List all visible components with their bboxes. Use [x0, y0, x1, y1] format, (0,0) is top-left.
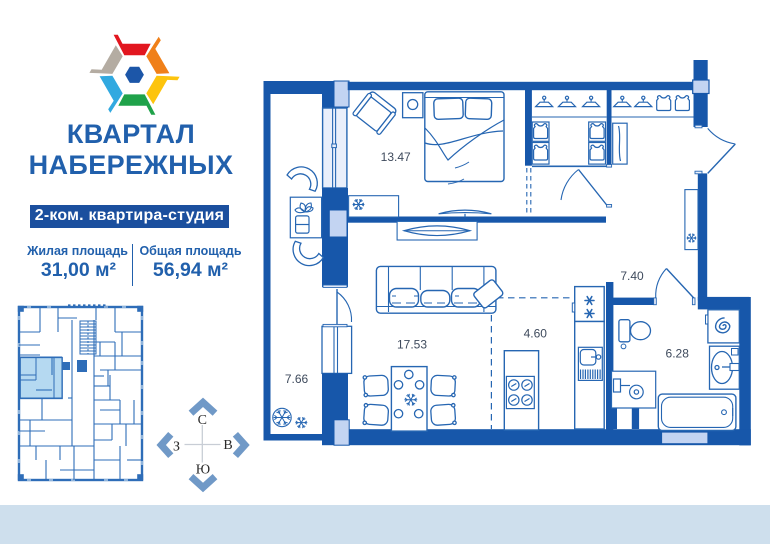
svg-text:В: В [223, 438, 232, 453]
svg-text:С: С [198, 413, 207, 428]
svg-text:7.40: 7.40 [620, 269, 644, 283]
svg-text:З: З [173, 440, 180, 455]
svg-text:13.47: 13.47 [381, 150, 411, 164]
svg-text:6.28: 6.28 [666, 347, 690, 361]
svg-text:7.66: 7.66 [285, 372, 309, 386]
svg-text:Ю: Ю [196, 463, 210, 478]
svg-text:17.53: 17.53 [397, 338, 427, 352]
svg-text:4.60: 4.60 [524, 327, 548, 341]
